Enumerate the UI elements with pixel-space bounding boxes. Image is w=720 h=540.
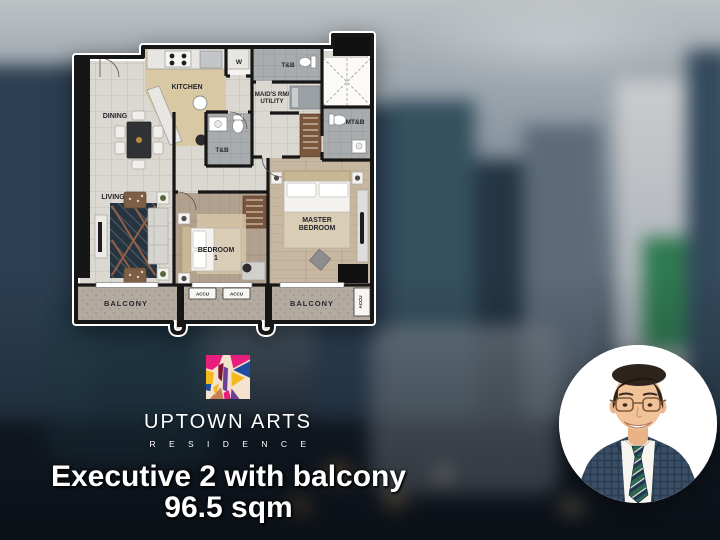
armchair: [124, 268, 146, 284]
label-mtb: MT&B: [346, 119, 365, 126]
label-dining: DINING: [103, 113, 128, 120]
kitchen-sink: [193, 96, 207, 110]
label-washer: W: [236, 59, 243, 66]
floor-plan: DINING KITCHEN LIVING W T&B MAID'S RM/ U…: [60, 25, 380, 340]
desk-chair: [243, 264, 252, 273]
pillow: [193, 231, 206, 248]
caption-block: Executive 2 with balcony 96.5 sqm: [0, 461, 457, 523]
label-maids-utility: UTILITY: [260, 98, 284, 105]
bed1-headboard: [182, 226, 191, 273]
dining-chair: [153, 142, 163, 154]
master-headboard: [284, 171, 350, 181]
master-tv: [360, 212, 364, 244]
master-black-box: [338, 264, 368, 283]
uptown-arts-logo: [206, 354, 250, 400]
agent-portrait: [559, 345, 717, 503]
toilet: [299, 57, 311, 66]
dining-chair: [153, 126, 163, 138]
label-master2: BEDROOM: [299, 225, 336, 232]
label-kitchen: KITCHEN: [171, 84, 202, 91]
stove: [165, 51, 191, 67]
dining-chair: [132, 160, 145, 169]
label-accu3: ACCU: [358, 296, 363, 309]
glass-doors: [96, 283, 344, 288]
label-accu2: ACCU: [230, 292, 243, 297]
shaft: [333, 35, 372, 56]
label-living: LIVING: [101, 194, 125, 201]
marketing-poster: DINING KITCHEN LIVING W T&B MAID'S RM/ U…: [0, 0, 720, 540]
brand-block: UPTOWN ARTS R E S I D E N C E: [28, 354, 428, 449]
label-bedroom1-num: 1: [214, 255, 218, 262]
sofa: [148, 208, 168, 264]
pillow: [287, 183, 316, 197]
label-master: MASTER: [302, 217, 332, 224]
toilet: [233, 119, 244, 133]
brand-subtitle: R E S I D E N C E: [28, 439, 428, 449]
tv: [98, 222, 102, 252]
label-maid-tb: T&B: [281, 62, 295, 69]
caption-area: 96.5 sqm: [0, 492, 457, 523]
fridge: [200, 51, 222, 68]
label-balcony-right: BALCONY: [290, 299, 334, 308]
label-maids-rm: MAID'S RM/: [255, 91, 290, 98]
label-common-tb: T&B: [215, 147, 229, 154]
brand-name: UPTOWN ARTS: [28, 411, 428, 434]
left-shear-wall: [77, 57, 90, 278]
caption-title: Executive 2 with balcony: [0, 461, 457, 492]
centerpiece: [136, 137, 142, 143]
label-accu1: ACCU: [196, 292, 209, 297]
dining-chair: [115, 126, 125, 138]
dining-chair: [115, 142, 125, 154]
agent-photo: [559, 345, 717, 503]
kitchen-counter: [147, 49, 249, 69]
armchair: [124, 192, 146, 208]
label-bedroom1: BEDROOM: [198, 247, 235, 254]
pillow: [319, 183, 348, 197]
label-balcony-left: BALCONY: [104, 299, 148, 308]
dining-chair: [132, 111, 145, 120]
